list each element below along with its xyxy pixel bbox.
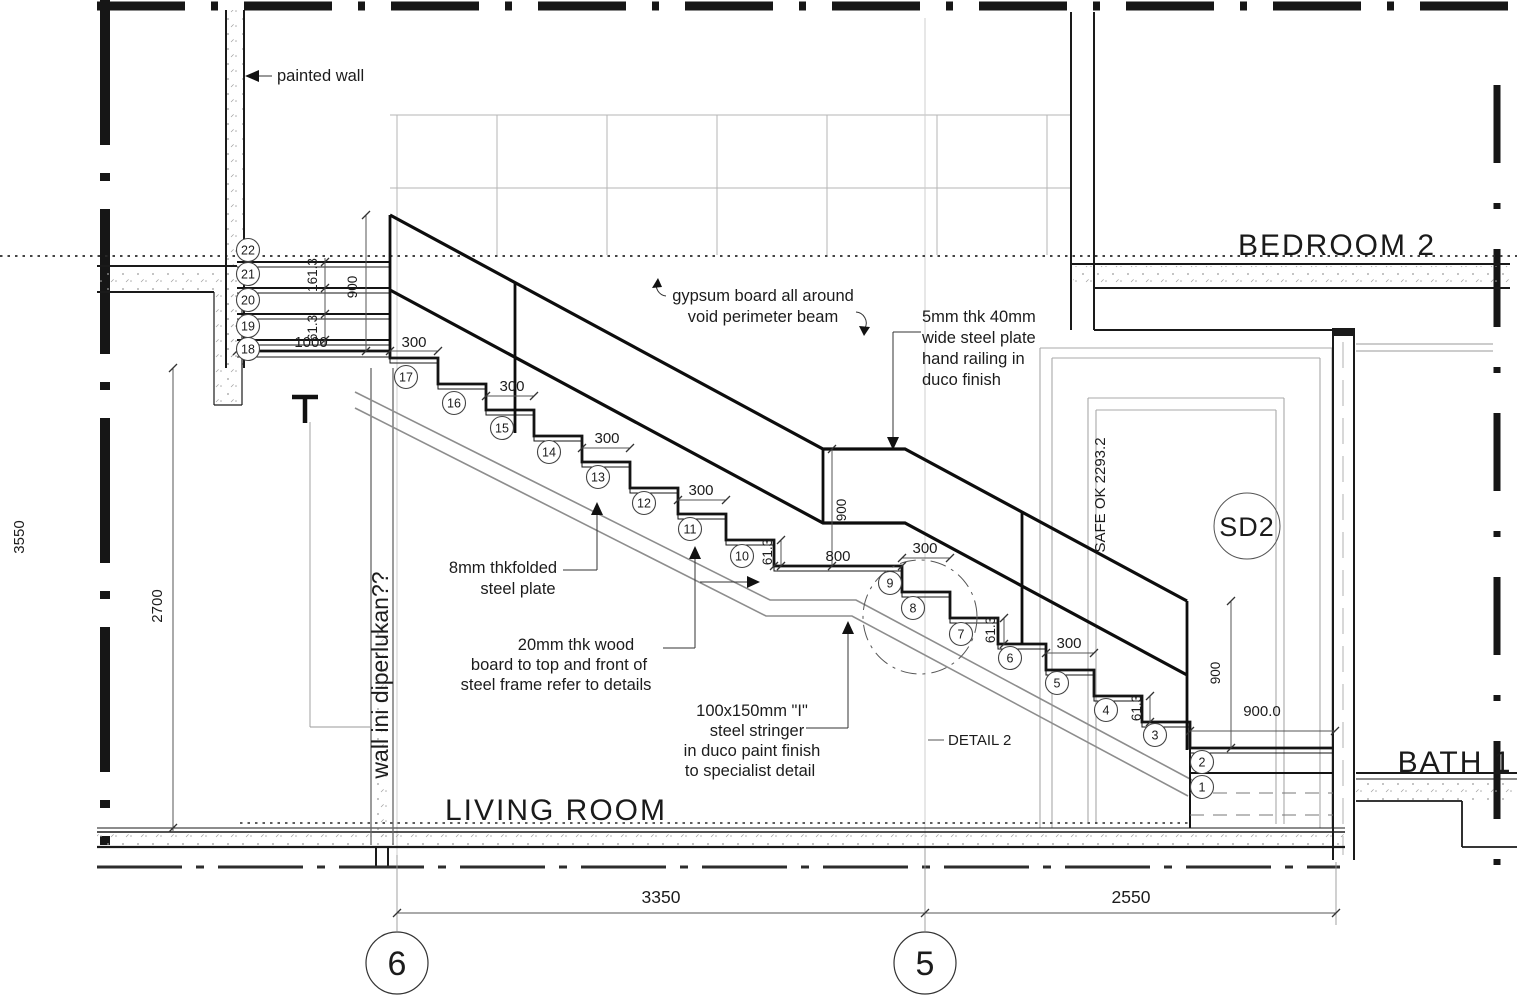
step-number-9: 9 xyxy=(887,577,894,591)
step-number-12: 12 xyxy=(637,497,651,511)
step-number-2: 2 xyxy=(1199,756,1206,770)
note-gypsum-1: gypsum board all around xyxy=(672,287,854,305)
dim-rail-height-right: 900 xyxy=(1208,662,1223,685)
dim-overall-height: 3550 xyxy=(11,520,28,553)
dim-tread-15: 300 xyxy=(499,378,524,395)
step-number-14: 14 xyxy=(542,446,556,460)
dim-tread-13: 300 xyxy=(594,430,619,447)
note-stringer-3: in duco paint finish xyxy=(684,742,821,760)
step-number-10: 10 xyxy=(735,550,749,564)
step-number-6: 6 xyxy=(1007,652,1014,666)
dim-mid-landing: 800 xyxy=(825,548,850,565)
note-handrail-1: 5mm thk 40mm xyxy=(922,308,1036,326)
note-handrail-2: wide steel plate xyxy=(921,329,1036,347)
dim-tread-5: 300 xyxy=(1056,635,1081,652)
dim-riser-7: 61.3 xyxy=(983,617,998,643)
dim-floor-height: 2700 xyxy=(149,589,166,622)
note-wood-1: 20mm thk wood xyxy=(518,636,634,654)
dim-tread-17: 300 xyxy=(401,334,426,351)
room-label-bath1: BATH 1 xyxy=(1398,746,1513,779)
note-plate-2: steel plate xyxy=(480,580,555,598)
room-label-living-room: LIVING ROOM xyxy=(445,794,667,827)
stair-section-drawing: BEDROOM 2 LIVING ROOM BATH 1 SD2 painted… xyxy=(0,0,1517,1000)
note-plate-1: 8mm thkfolded xyxy=(449,559,557,577)
step-number-20: 20 xyxy=(241,294,255,308)
dim-riser-top: 161.3 xyxy=(305,258,320,292)
detail-ref-label: DETAIL 2 xyxy=(948,732,1011,749)
drawing-canvas: BEDROOM 2 LIVING ROOM BATH 1 SD2 painted… xyxy=(0,0,1517,1000)
dim-landing-width: 1000 xyxy=(294,334,327,351)
step-number-7: 7 xyxy=(958,628,965,642)
note-wood-2: board to top and front of xyxy=(471,656,648,674)
step-number-15: 15 xyxy=(495,422,509,436)
note-wood-3: steel frame refer to details xyxy=(461,676,652,694)
step-number-13: 13 xyxy=(591,471,605,485)
note-handrail-3: hand railing in xyxy=(922,350,1025,368)
steel-beam-symbol xyxy=(292,397,318,423)
dim-tread-11: 300 xyxy=(688,482,713,499)
note-handrail-4: duco finish xyxy=(922,371,1001,389)
dim-span-left: 3350 xyxy=(642,887,681,907)
dim-riser-10: 61.3 xyxy=(760,539,775,565)
step-number-11: 11 xyxy=(684,523,697,537)
step-number-18: 18 xyxy=(241,343,255,357)
dim-span-right: 2550 xyxy=(1112,887,1151,907)
step-number-16: 16 xyxy=(447,397,461,411)
dim-platform-width: 900.0 xyxy=(1243,703,1281,720)
step-number-22: 22 xyxy=(241,244,255,258)
grid-bubbles: 6 5 xyxy=(366,932,956,994)
step-number-5: 5 xyxy=(1054,677,1061,691)
grid-bubble-5-label: 5 xyxy=(916,945,935,983)
step-number-4: 4 xyxy=(1103,704,1110,718)
leader-lines xyxy=(245,70,921,728)
dim-rail-height-top: 900 xyxy=(345,276,360,299)
dim-rail-height-mid: 900 xyxy=(834,499,849,522)
note-stringer-2: steel stringer xyxy=(710,722,805,740)
grid-bubble-6-label: 6 xyxy=(388,945,407,983)
door-frame xyxy=(1040,348,1332,828)
step-number-19: 19 xyxy=(241,320,255,334)
room-label-bedroom2: BEDROOM 2 xyxy=(1238,229,1436,262)
note-gypsum-2: void perimeter beam xyxy=(688,308,838,326)
note-stringer-1: 100x150mm "I" xyxy=(696,702,808,720)
door-tag-label: SD2 xyxy=(1219,512,1275,542)
note-painted-wall: painted wall xyxy=(277,67,364,85)
dim-riser-4: 61.3 xyxy=(1129,695,1144,721)
step-number-17: 17 xyxy=(399,371,413,385)
step-number-21: 21 xyxy=(241,268,255,282)
step-number-8: 8 xyxy=(910,602,917,616)
note-stringer-4: to specialist detail xyxy=(685,762,815,780)
step-number-3: 3 xyxy=(1152,729,1159,743)
safe-level-label: SAFE OK 2293.2 xyxy=(1092,437,1109,552)
dim-tread-9: 300 xyxy=(912,540,937,557)
wall-question-label: wall ini diperlukan?? xyxy=(367,571,393,779)
step-number-1: 1 xyxy=(1199,781,1206,795)
